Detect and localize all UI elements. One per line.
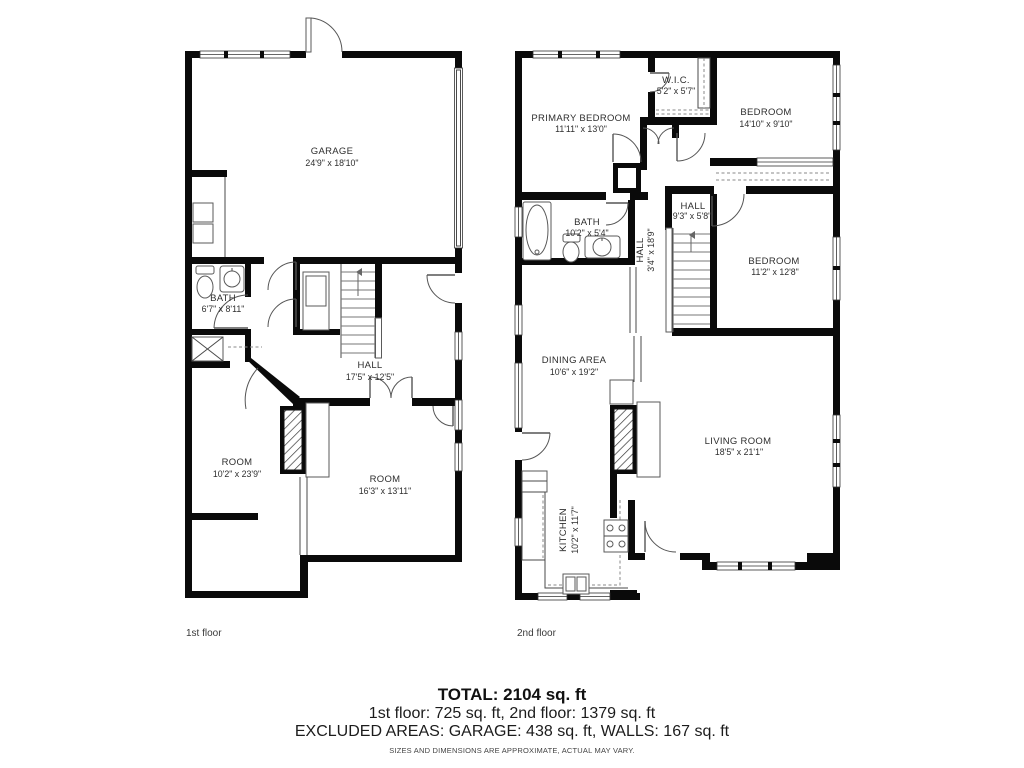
room-dims-bath-2f: 10'2" x 5'4" [565, 228, 608, 238]
room-dims-living-room: 18'5" x 21'1" [715, 447, 763, 457]
room-dims-bedroom-top: 14'10" x 9'10" [739, 119, 792, 129]
second-floor-plan: PRIMARY BEDROOM 11'11" x 13'0" W.I.C. 5'… [515, 51, 840, 639]
room-label-kitchen: KITCHEN [558, 508, 569, 552]
shower [192, 337, 223, 361]
room-label-room-right: ROOM [370, 474, 401, 485]
stove [604, 520, 628, 552]
sink [220, 266, 244, 292]
fireplace [280, 403, 329, 477]
caption-second-floor: 2nd floor [517, 628, 557, 639]
room-dims-hall-vertical: 3'4" x 18'9" [646, 228, 656, 271]
room-label-hall-1f: HALL [358, 360, 383, 371]
room-label-dining-area: DINING AREA [542, 355, 607, 366]
kitchen-sink [563, 574, 589, 594]
room-dims-bath-1f: 6'7" x 8'11" [202, 304, 245, 314]
room-label-living-room: LIVING ROOM [705, 436, 772, 447]
room-dims-dining-area: 10'6" x 19'2" [550, 367, 598, 377]
room-dims-garage: 24'9" x 18'10" [305, 158, 358, 168]
second-floor-stairs [666, 228, 710, 332]
room-dims-primary-bedroom: 11'11" x 13'0" [555, 124, 607, 134]
room-label-garage: GARAGE [311, 146, 353, 157]
room-dims-room-left: 10'2" x 23'9" [213, 469, 261, 479]
caption-first-floor: 1st floor [186, 628, 222, 639]
room-label-hall-vertical: HALL [635, 238, 646, 263]
room-label-bedroom-top: BEDROOM [740, 107, 791, 118]
summary-total: TOTAL: 2104 sq. ft [438, 685, 587, 704]
room-dims-hall-1f: 17'5" x 12'5" [346, 372, 394, 382]
summary-floors: 1st floor: 725 sq. ft, 2nd floor: 1379 s… [369, 705, 656, 722]
room-label-bedroom-mid: BEDROOM [748, 256, 799, 267]
summary-disclaimer: SIZES AND DIMENSIONS ARE APPROXIMATE, AC… [389, 746, 635, 755]
room-label-bath-2f: BATH [574, 217, 600, 228]
room-label-primary-bedroom: PRIMARY BEDROOM [531, 113, 630, 124]
room-label-room-left: ROOM [222, 457, 253, 468]
room-label-wic: W.I.C. [662, 75, 690, 86]
summary-excluded: EXCLUDED AREAS: GARAGE: 438 sq. ft, WALL… [295, 723, 730, 740]
bathtub [523, 202, 551, 260]
room-dims-kitchen: 10'2" x 11'7" [570, 506, 580, 554]
sink-2f [585, 236, 620, 258]
first-floor-plan: GARAGE 24'9" x 18'10" BATH 6'7" x 8'11" … [185, 18, 463, 639]
room-dims-wic: 5'2" x 5'7" [657, 86, 695, 96]
room-dims-hall-small: 9'3" x 5'8" [673, 211, 711, 221]
first-floor-doors [214, 18, 455, 426]
room-dims-room-right: 16'3" x 13'11" [359, 486, 412, 496]
room-dims-bedroom-mid: 11'2" x 12'8" [751, 267, 799, 277]
toilet-2f [563, 234, 580, 262]
garage-door [455, 68, 463, 248]
floorplan-page: GARAGE 24'9" x 18'10" BATH 6'7" x 8'11" … [0, 0, 1024, 768]
room-label-bath-1f: BATH [210, 293, 236, 304]
fireplace-2f [610, 380, 660, 477]
area-summary: TOTAL: 2104 sq. ft 1st floor: 725 sq. ft… [295, 685, 730, 755]
floorplan-drawing: GARAGE 24'9" x 18'10" BATH 6'7" x 8'11" … [0, 0, 1024, 768]
